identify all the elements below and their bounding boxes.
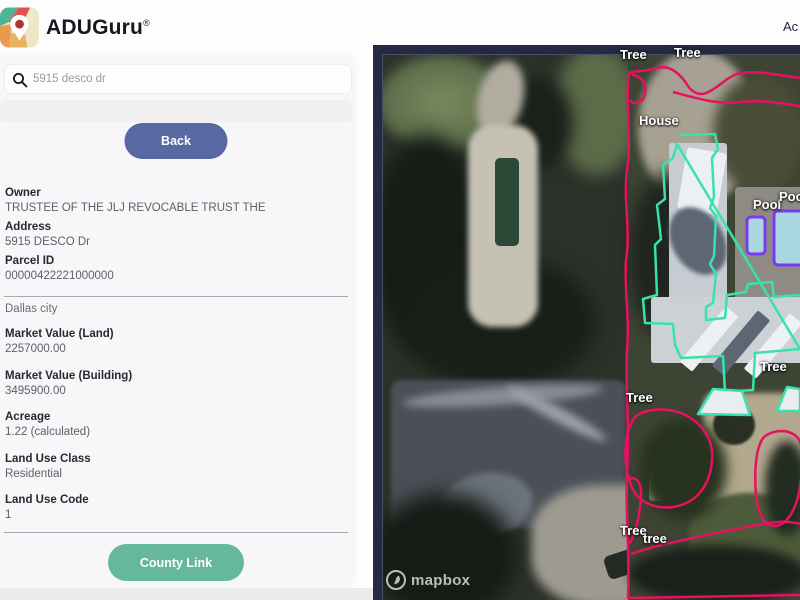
field-label: Parcel ID	[5, 255, 340, 267]
registered-mark: ®	[143, 18, 150, 28]
field-land-use-code: Land Use Code 1	[5, 494, 340, 521]
search-secondary-bar[interactable]	[0, 100, 352, 122]
mapbox-icon	[386, 570, 406, 590]
field-acreage: Acreage 1.22 (calculated)	[5, 411, 340, 438]
field-owner: Owner TRUSTEE OF THE JLJ REVOCABLE TRUST…	[5, 187, 340, 214]
city-label: Dallas city	[5, 303, 57, 315]
field-parcel-id: Parcel ID 00000422221000000	[5, 255, 340, 282]
field-land-use-class: Land Use Class Residential	[5, 453, 340, 480]
field-value: 3495900.00	[5, 385, 340, 397]
field-value: 1	[5, 509, 340, 521]
field-value: TRUSTEE OF THE JLJ REVOCABLE TRUST THE	[5, 202, 340, 214]
field-label: Land Use Class	[5, 453, 340, 465]
search-input[interactable]: 5915 desco dr	[4, 64, 352, 94]
satellite-map[interactable]	[383, 55, 800, 600]
field-label: Land Use Code	[5, 494, 340, 506]
bottom-strip	[0, 588, 373, 600]
field-address: Address 5915 DESCO Dr	[5, 221, 340, 248]
back-button[interactable]: Back	[125, 123, 228, 159]
divider	[4, 532, 348, 533]
account-link[interactable]: Ac	[783, 19, 798, 34]
field-value: 1.22 (calculated)	[5, 426, 340, 438]
search-icon	[12, 72, 28, 88]
field-market-value-land: Market Value (Land) 2257000.00	[5, 328, 340, 355]
field-label: Address	[5, 221, 340, 233]
field-value: 00000422221000000	[5, 270, 340, 282]
property-sidebar: 5915 desco dr Back Owner TRUSTEE OF THE …	[0, 55, 352, 588]
divider	[4, 296, 348, 297]
county-link-button[interactable]: County Link	[108, 544, 244, 581]
field-value: Residential	[5, 468, 340, 480]
field-value: 5915 DESCO Dr	[5, 236, 340, 248]
field-value: 2257000.00	[5, 343, 340, 355]
aduguru-logo	[0, 7, 39, 48]
field-label: Market Value (Land)	[5, 328, 340, 340]
field-label: Market Value (Building)	[5, 370, 340, 382]
search-query-text: 5915 desco dr	[33, 73, 106, 85]
map-panel[interactable]: Tree Tree House Pool Pool Tree Tree Tree…	[373, 45, 800, 600]
field-label: Acreage	[5, 411, 340, 423]
field-market-value-building: Market Value (Building) 3495900.00	[5, 370, 340, 397]
brand-title: ADUGuru®	[46, 16, 150, 40]
mapbox-attribution[interactable]: mapbox	[386, 570, 470, 590]
field-label: Owner	[5, 187, 340, 199]
mapbox-wordmark: mapbox	[411, 572, 470, 589]
